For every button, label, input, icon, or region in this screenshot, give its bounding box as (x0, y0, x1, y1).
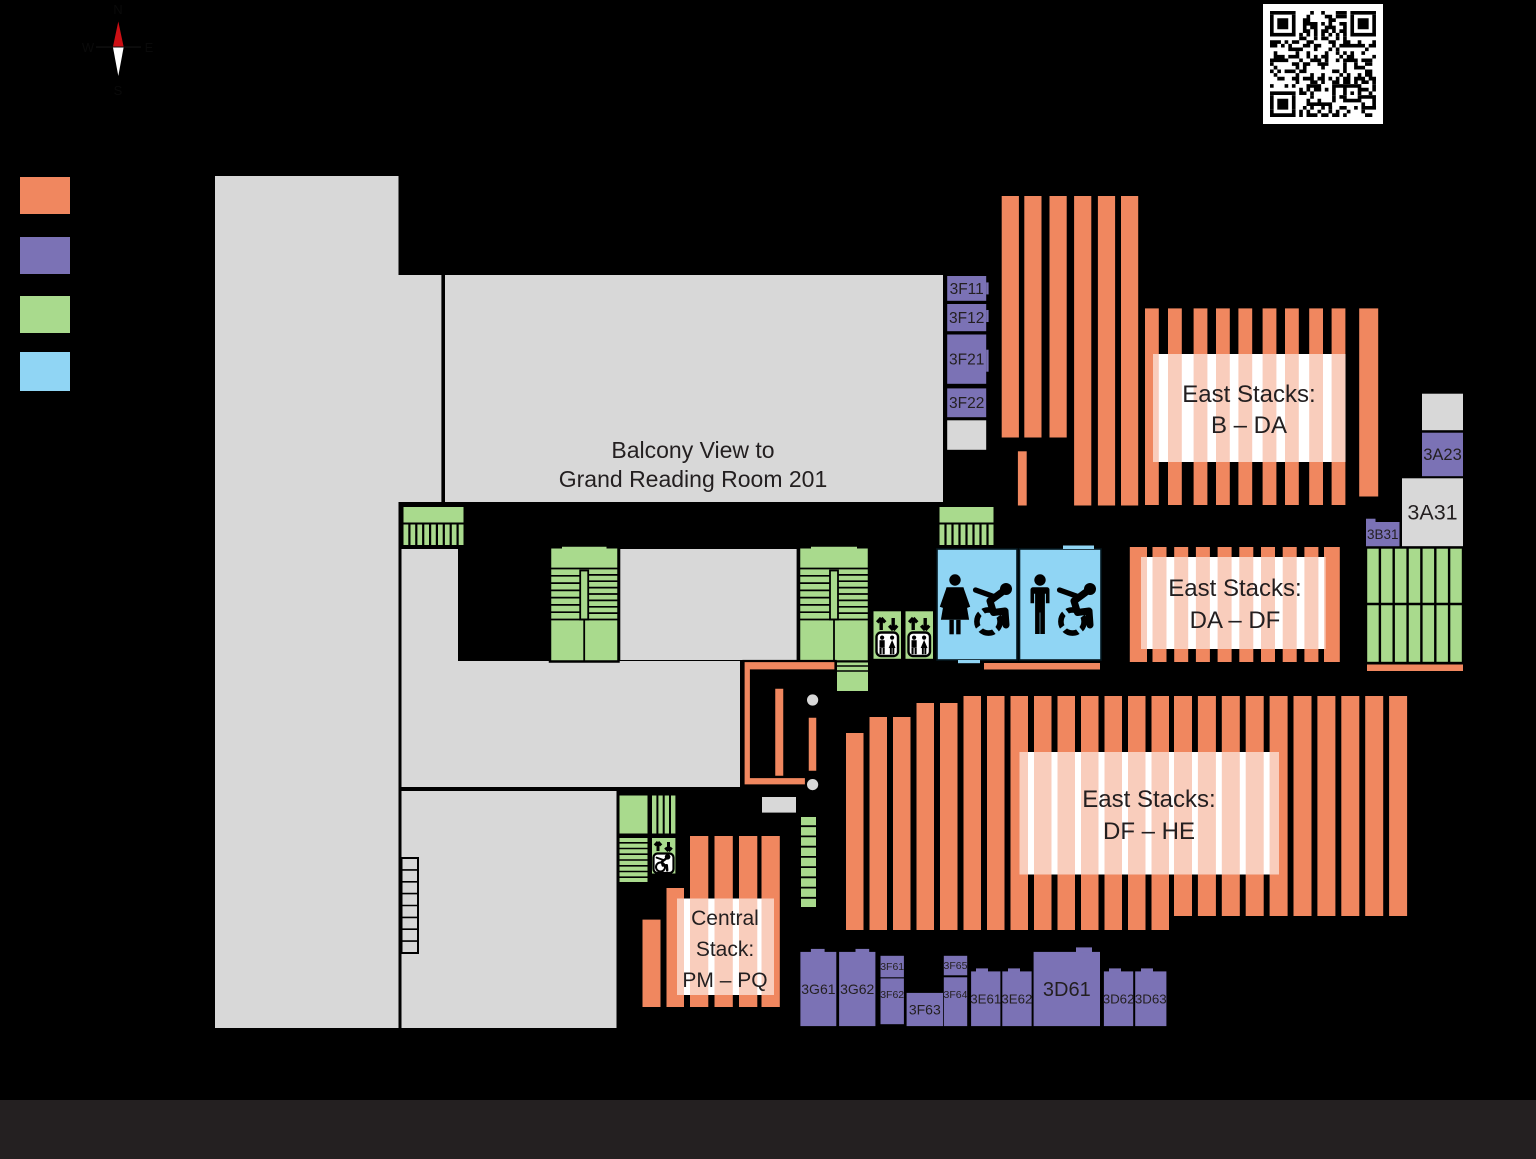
svg-text:Stack:: Stack: (696, 938, 754, 961)
svg-text:3G61: 3G61 (801, 981, 835, 997)
svg-text:3E61: 3E61 (970, 991, 1001, 1006)
svg-text:East Stacks:: East Stacks: (1082, 786, 1215, 813)
svg-text:3F22: 3F22 (949, 395, 984, 412)
svg-text:S: S (114, 83, 123, 98)
svg-text:3F11: 3F11 (950, 281, 984, 298)
svg-text:3E62: 3E62 (1001, 991, 1032, 1006)
svg-text:B – DA: B – DA (1211, 412, 1287, 439)
svg-text:3F12: 3F12 (949, 310, 984, 327)
svg-text:3F21: 3F21 (949, 352, 984, 369)
svg-text:East Stacks:: East Stacks: (1182, 381, 1315, 408)
svg-text:3F62: 3F62 (880, 989, 904, 1001)
svg-text:3D62: 3D62 (1103, 991, 1135, 1006)
svg-text:3A31: 3A31 (1407, 501, 1457, 525)
svg-text:3G62: 3G62 (840, 981, 874, 997)
svg-text:E: E (145, 40, 154, 55)
svg-text:3B31: 3B31 (1367, 527, 1399, 542)
svg-text:3F63: 3F63 (909, 1001, 941, 1017)
svg-text:3F64: 3F64 (944, 989, 968, 1001)
svg-text:W: W (82, 40, 95, 55)
svg-text:Grand Reading Room 201: Grand Reading Room 201 (559, 466, 828, 492)
svg-text:3D63: 3D63 (1135, 991, 1167, 1006)
svg-text:DA – DF: DA – DF (1190, 607, 1281, 634)
svg-text:East Stacks:: East Stacks: (1168, 575, 1301, 602)
svg-text:3F61: 3F61 (880, 961, 904, 973)
svg-text:N: N (113, 2, 122, 17)
svg-text:3A23: 3A23 (1423, 446, 1462, 464)
svg-text:3F65: 3F65 (944, 960, 968, 972)
svg-text:DF – HE: DF – HE (1103, 818, 1195, 845)
svg-text:3D61: 3D61 (1043, 979, 1091, 1001)
svg-text:PM – PQ: PM – PQ (682, 969, 767, 992)
svg-text:Balcony View to: Balcony View to (611, 437, 774, 463)
svg-text:Central: Central (691, 907, 759, 930)
